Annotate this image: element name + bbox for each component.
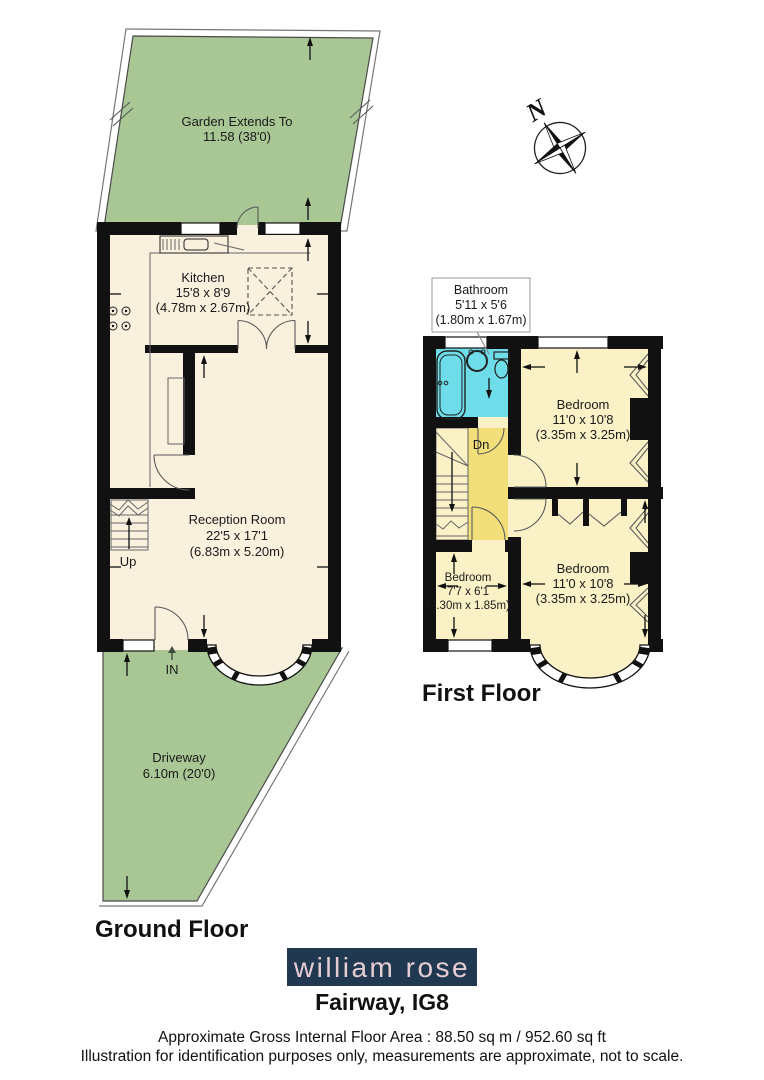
svg-text:(3.35m x 3.25m): (3.35m x 3.25m) bbox=[536, 427, 631, 442]
first-floor-plan: Dn bbox=[423, 278, 663, 688]
svg-text:11'0 x 10'8: 11'0 x 10'8 bbox=[552, 576, 613, 591]
bay-window-first bbox=[530, 645, 650, 688]
stairs-down-label: Dn bbox=[473, 437, 490, 452]
first-floor-title: First Floor bbox=[422, 680, 541, 707]
driveway-surface bbox=[103, 648, 342, 901]
svg-text:11'0 x 10'8: 11'0 x 10'8 bbox=[552, 412, 613, 427]
svg-text:(2.30m x 1.85m): (2.30m x 1.85m) bbox=[426, 600, 510, 612]
stairs-up-label: Up bbox=[120, 554, 137, 569]
svg-text:15'8 x 8'9: 15'8 x 8'9 bbox=[176, 285, 231, 300]
reception-window bbox=[123, 640, 154, 651]
compass-rose: N bbox=[503, 82, 601, 189]
svg-text:(1.80m x 1.67m): (1.80m x 1.67m) bbox=[435, 313, 526, 327]
svg-text:Bedroom: Bedroom bbox=[557, 561, 610, 576]
floor-area-text: Approximate Gross Internal Floor Area : … bbox=[158, 1029, 607, 1046]
ground-floor-title: Ground Floor bbox=[95, 916, 248, 943]
svg-text:7'7 x 6'1: 7'7 x 6'1 bbox=[447, 586, 489, 598]
bedroom-window bbox=[538, 337, 608, 348]
kitchen-window bbox=[181, 223, 220, 234]
svg-text:(3.35m x 3.25m): (3.35m x 3.25m) bbox=[536, 591, 631, 606]
ground-floor-plan: Up IN Kitchen 15'8 x 8'9 bbox=[97, 207, 341, 685]
svg-text:Reception Room: Reception Room bbox=[189, 512, 286, 527]
chimney-breast bbox=[630, 398, 648, 440]
svg-text:Kitchen: Kitchen bbox=[181, 270, 224, 285]
brand-logo-text: william rose bbox=[293, 952, 470, 983]
north-label: N bbox=[520, 92, 553, 128]
kitchen-window bbox=[265, 223, 300, 234]
svg-text:22'5 x 17'1: 22'5 x 17'1 bbox=[206, 528, 268, 543]
svg-text:Bathroom: Bathroom bbox=[454, 283, 508, 297]
address-title: Fairway, IG8 bbox=[315, 989, 449, 1015]
entrance-label: IN bbox=[166, 662, 179, 677]
garden: Garden Extends To 11.58 (38'0) bbox=[96, 29, 380, 234]
svg-text:Bedroom: Bedroom bbox=[445, 572, 492, 584]
floorplan: Garden Extends To 11.58 (38'0) Driveway … bbox=[0, 0, 764, 1080]
disclaimer-text: Illustration for identification purposes… bbox=[81, 1048, 684, 1065]
svg-text:(6.83m x 5.20m): (6.83m x 5.20m) bbox=[190, 544, 285, 559]
svg-text:(4.78m x 2.67m): (4.78m x 2.67m) bbox=[156, 300, 251, 315]
svg-text:Bedroom: Bedroom bbox=[557, 397, 610, 412]
svg-text:5'11 x 5'6: 5'11 x 5'6 bbox=[455, 298, 507, 312]
driveway-size-label: 6.10m (20'0) bbox=[143, 766, 216, 781]
garden-label: Garden Extends To bbox=[181, 114, 292, 129]
driveway: Driveway 6.10m (20'0) bbox=[99, 648, 349, 906]
bedroom-window bbox=[448, 640, 492, 651]
footer: william rose Fairway, IG8 Approximate Gr… bbox=[81, 948, 684, 1065]
garden-size-label: 11.58 (38'0) bbox=[203, 129, 271, 144]
chimney-breast bbox=[630, 552, 648, 584]
driveway-label: Driveway bbox=[152, 750, 206, 765]
bathroom-floor bbox=[436, 348, 508, 417]
